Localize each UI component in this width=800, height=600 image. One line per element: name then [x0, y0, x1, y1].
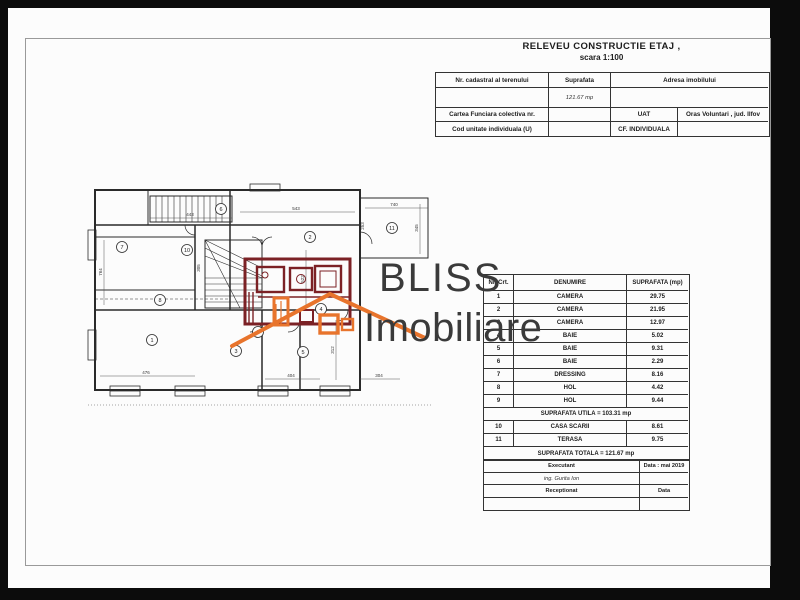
dim-label: 305 — [196, 264, 201, 272]
room-row-name: HOL — [514, 395, 627, 408]
logo-wordmark-line1: BLISS — [379, 258, 502, 298]
receptionat-empty-cell2 — [640, 498, 688, 510]
dim-label: 443 — [186, 212, 194, 217]
room-number: 3 — [234, 349, 237, 355]
cartea-funciara-value — [549, 108, 611, 122]
room-row-nr: 6 — [484, 356, 514, 369]
dim-label: 740 — [390, 202, 398, 207]
suprafata-col-header: Suprafata — [549, 73, 611, 88]
room-row-name: CASA SCARII — [514, 421, 627, 434]
cartea-funciara-label: Cartea Funciara colectiva nr. — [436, 108, 549, 122]
room-row-area: 5.02 — [627, 330, 688, 343]
title-block: RELEVEU CONSTRUCTIE ETAJ , scara 1:100 — [435, 41, 768, 62]
room-number: 11 — [389, 226, 395, 232]
room-row-area: 9.44 — [627, 395, 688, 408]
room-row-nr: 7 — [484, 369, 514, 382]
room-number: 6 — [219, 207, 222, 213]
rooms-table: Nr. Crt. DENUMIRE SUPRAFATA (mp) 1 CAMER… — [483, 274, 690, 461]
room-number: 10 — [184, 248, 190, 254]
room-row-area: 8.16 — [627, 369, 688, 382]
dim-label: 304 — [375, 373, 383, 378]
room-row-name: HOL — [514, 382, 627, 395]
room-number: 4 — [319, 307, 322, 313]
rooms-header-name: DENUMIRE — [514, 275, 627, 291]
room-row-area: 21.95 — [627, 304, 688, 317]
dim-label: 476 — [142, 370, 150, 375]
dim-label: 543 — [292, 206, 300, 211]
dim-label: 312 — [330, 346, 335, 354]
receptionat-empty-cell — [484, 498, 640, 510]
cadastral-col-header: Nr. cadastral al terenului — [436, 73, 549, 88]
dim-label: 253 — [360, 222, 365, 230]
adresa-col-header: Adresa imobilului — [611, 73, 768, 88]
room-number: 5 — [301, 350, 304, 356]
suprafata-value: 121.67 mp — [549, 88, 611, 108]
room-number: 8 — [158, 298, 161, 304]
cf-individuala-value — [678, 122, 768, 136]
room-row-name: TERASA — [514, 434, 627, 447]
room-row-area: 29.75 — [627, 291, 688, 304]
adresa-value-cell — [611, 88, 768, 108]
executant-signature-cell — [640, 473, 688, 485]
cod-unitate-value — [549, 122, 611, 136]
dim-label: 404 — [287, 373, 295, 378]
dim-label: 345 — [414, 224, 419, 232]
receptionat-label: Receptionat — [484, 485, 640, 498]
room-row-area: 8.61 — [627, 421, 688, 434]
door-arcs — [185, 225, 372, 332]
logo-wordmark-line2: Imobiliare — [364, 308, 542, 348]
room-row-nr: 10 — [484, 421, 514, 434]
document-page: RELEVEU CONSTRUCTIE ETAJ , scara 1:100 N… — [8, 8, 770, 588]
executant-name: ing. Gurita Ion — [484, 473, 640, 485]
cadastral-table: Nr. cadastral al terenului Suprafata Adr… — [435, 72, 770, 137]
document-scale: scara 1:100 — [435, 53, 768, 62]
room-row-area: 2.29 — [627, 356, 688, 369]
room-row-name: BAIE — [514, 356, 627, 369]
room-number: 1 — [150, 338, 153, 344]
executant-date: Data : mai 2019 — [640, 460, 688, 473]
fixture-shower2 — [315, 266, 341, 292]
room-number: 7 — [120, 245, 123, 251]
room-row-nr: 8 — [484, 382, 514, 395]
document-title: RELEVEU CONSTRUCTIE ETAJ , — [435, 41, 768, 52]
room-row-area: 4.42 — [627, 382, 688, 395]
room-row-area: 9.31 — [627, 343, 688, 356]
room-row-nr: 11 — [484, 434, 514, 447]
signature-table: Executant Data : mai 2019 ing. Gurita Io… — [483, 459, 690, 511]
cod-unitate-label: Cod unitate individuala (U) — [436, 122, 549, 136]
dim-label: 764 — [98, 268, 103, 276]
room-number: 2 — [308, 235, 311, 241]
screenshot-stage: RELEVEU CONSTRUCTIE ETAJ , scara 1:100 N… — [0, 0, 800, 600]
suprafata-totala-row: SUPRAFATA TOTALA = 121.67 mp — [484, 447, 688, 460]
room-row-name: DRESSING — [514, 369, 627, 382]
executant-label: Executant — [484, 460, 640, 473]
uat-label: UAT — [611, 108, 678, 122]
cadastral-value-cell — [436, 88, 549, 108]
room-row-nr: 9 — [484, 395, 514, 408]
room-row-area: 9.75 — [627, 434, 688, 447]
receptionat-date-label: Data — [640, 485, 688, 498]
suprafata-utila-row: SUPRAFATA UTILA = 103.31 mp — [484, 408, 688, 421]
rooms-header-area: SUPRAFATA (mp) — [627, 275, 688, 291]
cf-individuala-label: CF. INDIVIDUALA — [611, 122, 678, 136]
fixture-shower — [257, 267, 284, 292]
room-row-name: CAMERA — [514, 291, 627, 304]
uat-value: Oras Voluntari , jud. Ilfov — [678, 108, 768, 122]
room-row-area: 12.97 — [627, 317, 688, 330]
